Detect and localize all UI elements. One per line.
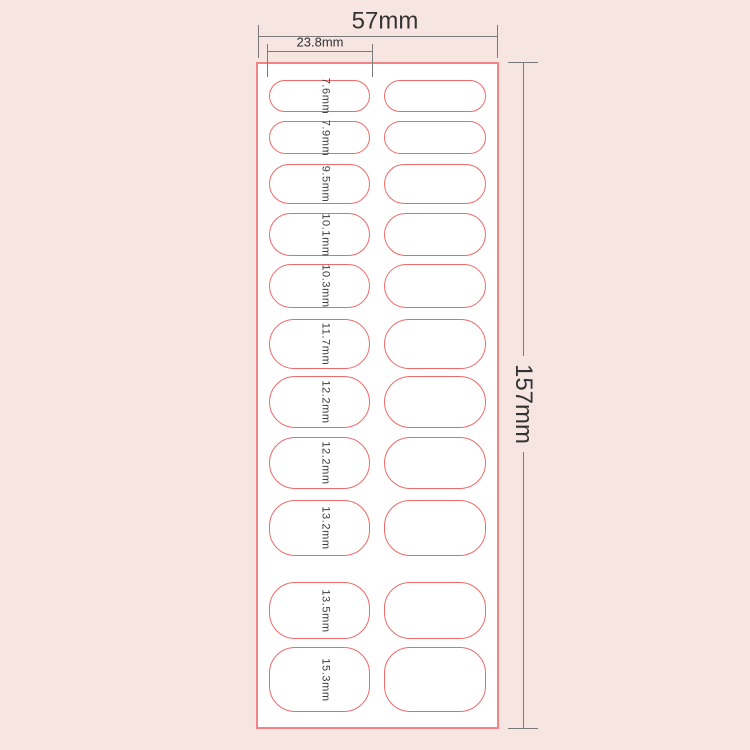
width-dimension-tick-right [497,25,498,58]
sticker-right-col-row-9 [384,500,486,556]
sticker-right-col-row-6 [384,319,486,369]
width-dimension-tick-left [258,25,259,58]
sticker-size-label: 10.1mm [320,213,331,256]
sticker-right-col-row-8 [384,437,486,489]
column-width-dimension-tick-right [372,44,373,77]
sticker-right-col-row-2 [384,121,486,154]
height-dimension-label: 157mm [508,356,538,452]
sticker-size-label: 13.5mm [320,589,331,632]
sticker-size-label: 11.7mm [320,323,331,366]
width-dimension-line [258,36,498,37]
sticker-size-label: 12.2mm [320,380,331,423]
sticker-size-label: 10.3mm [320,264,331,307]
sticker-size-label: 13.2mm [320,506,331,549]
column-width-dimension-label: 23.8mm [297,36,344,50]
width-dimension-label: 57mm [352,9,419,35]
height-dimension-tick-top [508,62,538,63]
sticker-size-label: 12.2mm [320,441,331,484]
sticker-size-label: 7.9mm [320,119,331,156]
sticker-right-col-row-1 [384,80,486,112]
sticker-right-col-row-7 [384,376,486,428]
height-dimension-tick-bottom [508,728,538,729]
sticker-size-label: 7.6mm [320,78,331,115]
sticker-right-col-row-11 [384,647,486,712]
sticker-right-col-row-3 [384,164,486,204]
sticker-right-col-row-4 [384,213,486,256]
page: 7.6mm7.9mm9.5mm10.1mm10.3mm11.7mm12.2mm1… [0,0,750,750]
sticker-right-col-row-5 [384,264,486,308]
sticker-sheet: 7.6mm7.9mm9.5mm10.1mm10.3mm11.7mm12.2mm1… [256,62,499,729]
column-width-dimension-line [267,51,373,52]
sticker-size-label: 9.5mm [320,166,331,203]
sticker-right-col-row-10 [384,582,486,639]
column-width-dimension-tick-left [267,44,268,77]
sticker-size-label: 15.3mm [320,658,331,701]
